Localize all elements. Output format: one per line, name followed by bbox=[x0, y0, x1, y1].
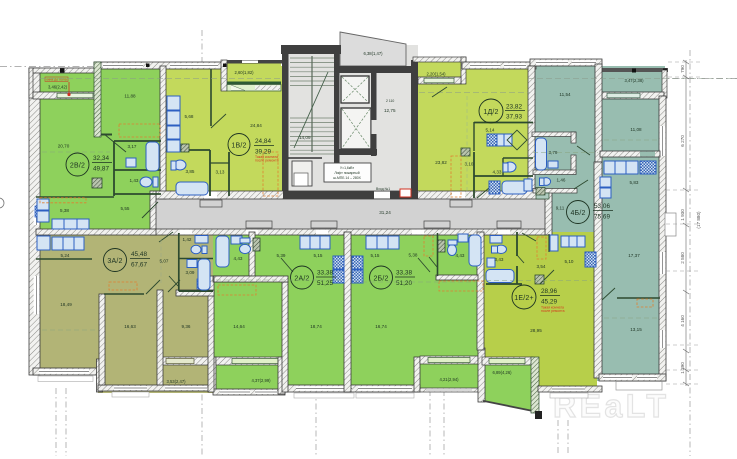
svg-text:4,33: 4,33 bbox=[493, 170, 502, 175]
svg-text:окна до пола: окна до пола bbox=[46, 78, 67, 82]
svg-text:1 390: 1 390 bbox=[680, 362, 685, 374]
svg-text:6,38(1,47): 6,38(1,47) bbox=[363, 51, 383, 56]
svg-text:6,89(4,26): 6,89(4,26) bbox=[492, 370, 512, 375]
svg-text:33,38: 33,38 bbox=[317, 270, 333, 277]
svg-text:4,43: 4,43 bbox=[234, 256, 243, 261]
svg-text:45,48: 45,48 bbox=[131, 251, 147, 258]
svg-text:4,37(2,99): 4,37(2,99) bbox=[251, 378, 271, 383]
svg-text:3,54: 3,54 bbox=[537, 264, 546, 269]
svg-text:5,38: 5,38 bbox=[60, 208, 69, 213]
svg-text:3,53(2,47): 3,53(2,47) bbox=[166, 379, 186, 384]
svg-text:Лифт пожарный: Лифт пожарный bbox=[334, 171, 359, 175]
svg-text:2Б/2: 2Б/2 bbox=[373, 276, 388, 283]
svg-text:11,88: 11,88 bbox=[124, 94, 136, 99]
svg-text:13,15: 13,15 bbox=[630, 327, 642, 332]
svg-text:23,82: 23,82 bbox=[435, 160, 447, 165]
svg-text:5,55: 5,55 bbox=[121, 206, 130, 211]
svg-text:1Д/2: 1Д/2 bbox=[483, 109, 498, 116]
svg-text:3,85: 3,85 bbox=[186, 169, 195, 174]
svg-text:5,24: 5,24 bbox=[61, 253, 70, 258]
svg-text:11,08: 11,08 bbox=[630, 127, 642, 132]
svg-text:51,20: 51,20 bbox=[396, 280, 412, 287]
svg-text:3,46(2,42): 3,46(2,42) bbox=[48, 85, 68, 90]
svg-text:4 160: 4 160 bbox=[680, 315, 685, 327]
svg-text:45,29: 45,29 bbox=[541, 299, 557, 306]
svg-text:4Б/2: 4Б/2 bbox=[570, 210, 585, 217]
svg-text:23,82: 23,82 bbox=[506, 104, 522, 111]
svg-text:32,34: 32,34 bbox=[93, 155, 109, 162]
svg-text:9,36: 9,36 bbox=[182, 324, 191, 329]
svg-text:2 110: 2 110 bbox=[386, 99, 394, 103]
svg-text:49,87: 49,87 bbox=[93, 166, 109, 173]
svg-text:5,38: 5,38 bbox=[409, 253, 418, 258]
svg-text:1Е/2+: 1Е/2+ bbox=[514, 295, 534, 302]
svg-text:1В/2: 1В/2 bbox=[231, 143, 246, 150]
svg-text:5,15: 5,15 bbox=[314, 253, 323, 258]
svg-text:4,43: 4,43 bbox=[456, 253, 465, 258]
svg-text:24,84: 24,84 bbox=[255, 138, 271, 145]
svg-text:53,06: 53,06 bbox=[594, 203, 610, 210]
svg-text:2А/2: 2А/2 bbox=[294, 276, 309, 283]
svg-text:(17 880): (17 880) bbox=[696, 211, 701, 229]
svg-text:5,15: 5,15 bbox=[371, 253, 380, 258]
svg-text:9,11: 9,11 bbox=[556, 206, 565, 211]
svg-text:28,95: 28,95 bbox=[530, 328, 542, 333]
svg-text:2В/2: 2В/2 bbox=[70, 163, 85, 170]
svg-text:после ремонта: после ремонта bbox=[255, 159, 279, 163]
svg-text:2,20(1,54): 2,20(1,54) bbox=[426, 72, 446, 77]
svg-text:14,09: 14,09 bbox=[299, 135, 311, 140]
svg-text:5,10: 5,10 bbox=[565, 259, 574, 264]
svg-text:2,60(1,82): 2,60(1,82) bbox=[234, 70, 254, 75]
svg-text:31,24: 31,24 bbox=[379, 210, 391, 215]
svg-text:12,75: 12,75 bbox=[384, 108, 396, 113]
svg-text:5,14: 5,14 bbox=[486, 128, 495, 133]
svg-text:3А/2: 3А/2 bbox=[107, 258, 122, 265]
svg-text:3,10: 3,10 bbox=[465, 162, 474, 167]
svg-text:75,69: 75,69 bbox=[594, 214, 610, 221]
svg-text:3,17: 3,17 bbox=[128, 144, 137, 149]
svg-text:17,37: 17,37 bbox=[628, 253, 640, 258]
svg-text:5,68: 5,68 bbox=[185, 114, 194, 119]
svg-text:20,70: 20,70 bbox=[58, 144, 70, 149]
svg-text:33,38: 33,38 bbox=[396, 270, 412, 277]
svg-text:Вход №1: Вход №1 bbox=[376, 187, 390, 191]
svg-text:14,64: 14,64 bbox=[233, 324, 245, 329]
svg-text:1,42: 1,42 bbox=[183, 237, 192, 242]
svg-text:16,63: 16,63 bbox=[124, 324, 136, 329]
svg-text:11,54: 11,54 bbox=[559, 92, 571, 97]
svg-text:790: 790 bbox=[680, 65, 685, 73]
svg-text:67,67: 67,67 bbox=[131, 262, 147, 269]
svg-text:после ремонта: после ремонта bbox=[541, 309, 565, 313]
svg-text:37,93: 37,93 bbox=[506, 114, 522, 121]
svg-text:16,74: 16,74 bbox=[375, 324, 387, 329]
svg-text:ш-МПБ 14 – 280Х: ш-МПБ 14 – 280Х bbox=[333, 176, 361, 180]
svg-text:5,07: 5,07 bbox=[160, 259, 169, 264]
svg-text:1,43: 1,43 bbox=[130, 178, 139, 183]
svg-text:18,49: 18,49 bbox=[60, 302, 72, 307]
svg-text:18,74: 18,74 bbox=[310, 324, 322, 329]
svg-text:51,25: 51,25 bbox=[317, 280, 333, 287]
svg-text:У=1,6кВт: У=1,6кВт bbox=[340, 166, 354, 170]
svg-text:1 930: 1 930 bbox=[680, 209, 685, 221]
svg-text:5,83: 5,83 bbox=[630, 180, 639, 185]
svg-text:1,46: 1,46 bbox=[557, 178, 566, 183]
svg-text:28,96: 28,96 bbox=[541, 288, 557, 295]
svg-text:24,84: 24,84 bbox=[250, 123, 262, 128]
svg-text:3,43: 3,43 bbox=[495, 257, 504, 262]
svg-text:3,13: 3,13 bbox=[216, 170, 225, 175]
svg-text:4,21(2,94): 4,21(2,94) bbox=[439, 377, 459, 382]
svg-text:6 270: 6 270 bbox=[680, 135, 685, 147]
svg-text:2 580: 2 580 bbox=[680, 252, 685, 264]
svg-text:3,09: 3,09 bbox=[186, 270, 195, 275]
svg-text:5,39: 5,39 bbox=[277, 253, 286, 258]
